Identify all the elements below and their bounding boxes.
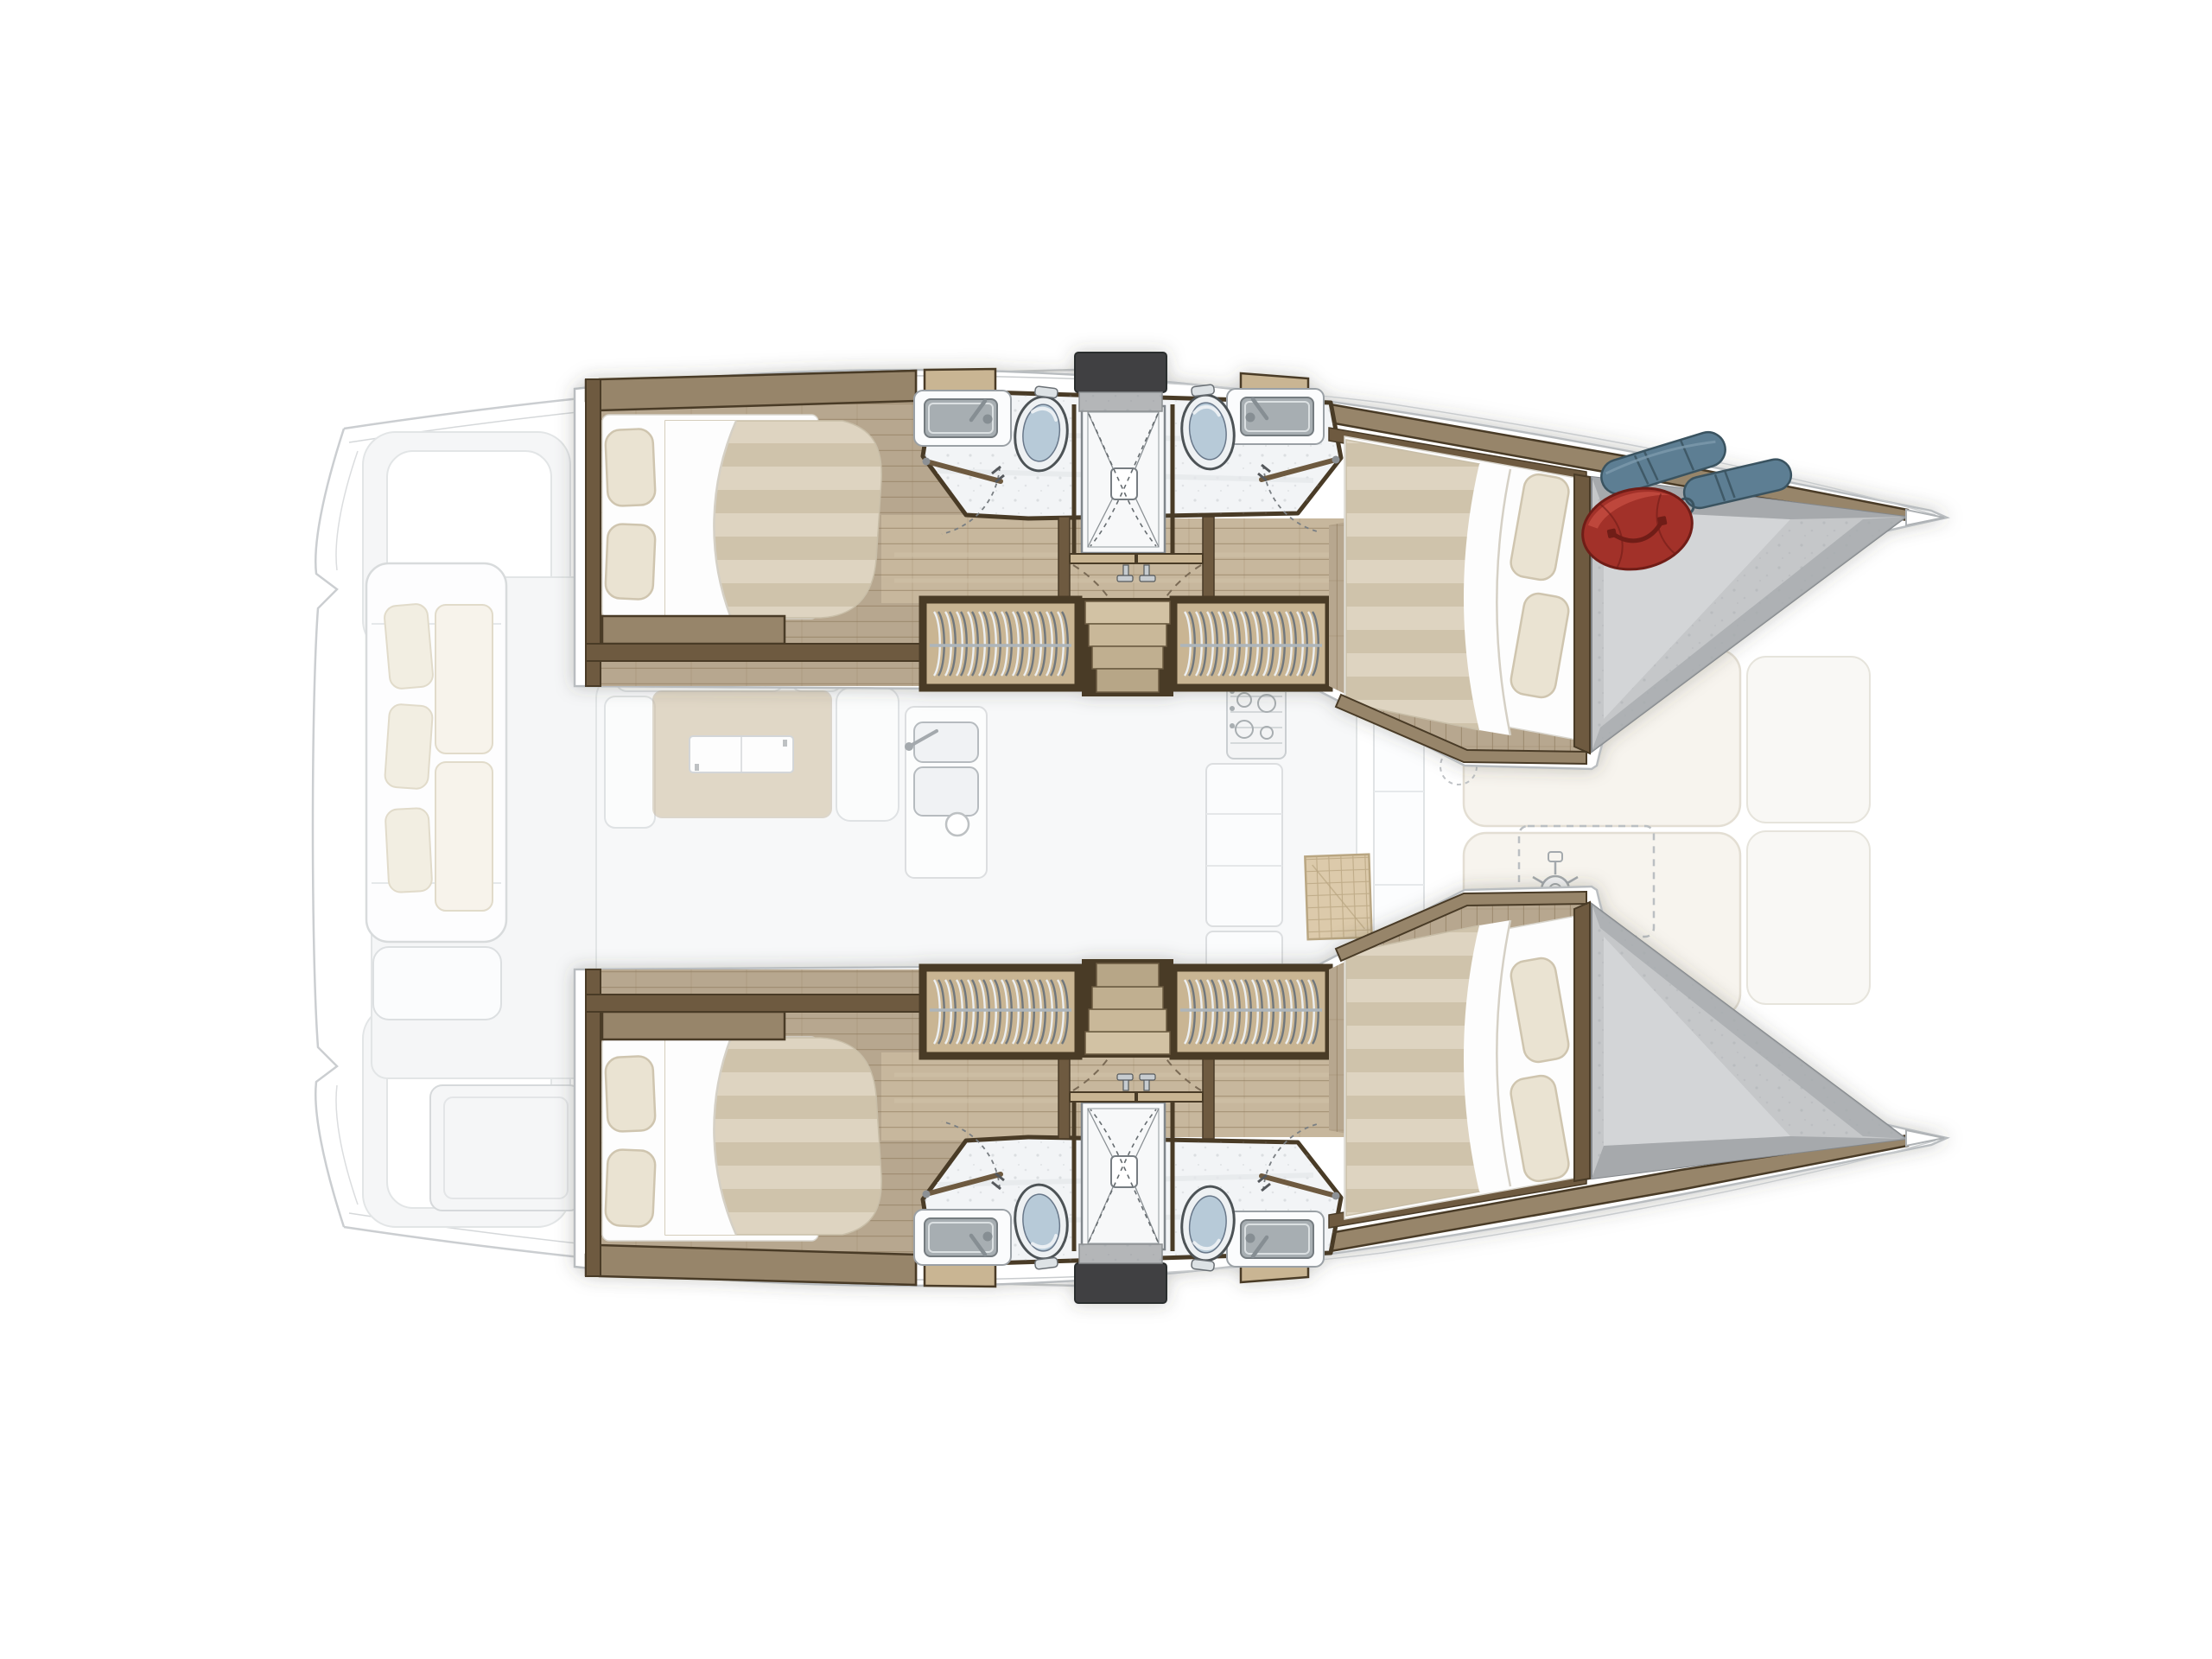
sofa-pillow	[385, 808, 433, 893]
galley-cabinets	[1206, 764, 1282, 978]
cabin-aft-wall	[586, 379, 601, 686]
saloon-chaise	[836, 688, 899, 821]
transom-outline	[313, 429, 344, 1227]
wardrobe-fwd	[1173, 600, 1329, 688]
side-pad	[1747, 831, 1870, 1004]
double-bed-forward	[1344, 436, 1576, 740]
bed-footboard	[602, 616, 785, 644]
forward-cabin	[1329, 428, 1590, 764]
woven-mat	[1305, 855, 1371, 940]
sofa-pillow	[384, 603, 434, 690]
cockpit-seat	[430, 1085, 582, 1211]
companionway-stairs	[1082, 598, 1173, 696]
cup	[946, 813, 969, 836]
door-leaf	[1070, 554, 1135, 563]
saloon-table	[653, 691, 831, 817]
floor-plan-canvas	[0, 0, 2212, 1659]
double-bed-aft	[602, 415, 881, 644]
floor-plan-page	[0, 0, 2212, 1659]
pillow	[605, 429, 656, 506]
wardrobe-aft	[923, 600, 1078, 688]
mattress	[1346, 440, 1479, 730]
cabin-fwd-wall	[586, 644, 931, 661]
side-pad	[1747, 657, 1870, 823]
bathroom-sink-left	[914, 391, 1011, 446]
companionway-hatch	[1075, 353, 1166, 392]
sofa-cushion	[435, 605, 493, 753]
door-leaf	[1137, 554, 1203, 563]
pillow	[605, 524, 656, 600]
storage-pocket	[373, 947, 501, 1020]
bathroom-sink-right	[1227, 389, 1324, 444]
sofa-pillow	[385, 703, 434, 789]
galley-sink-unit	[905, 707, 987, 878]
stove-ghost	[1227, 681, 1286, 759]
saloon-bench	[605, 696, 655, 828]
shower	[1082, 406, 1165, 553]
cockpit-sofa	[366, 563, 506, 1020]
sofa-cushion	[435, 762, 493, 911]
